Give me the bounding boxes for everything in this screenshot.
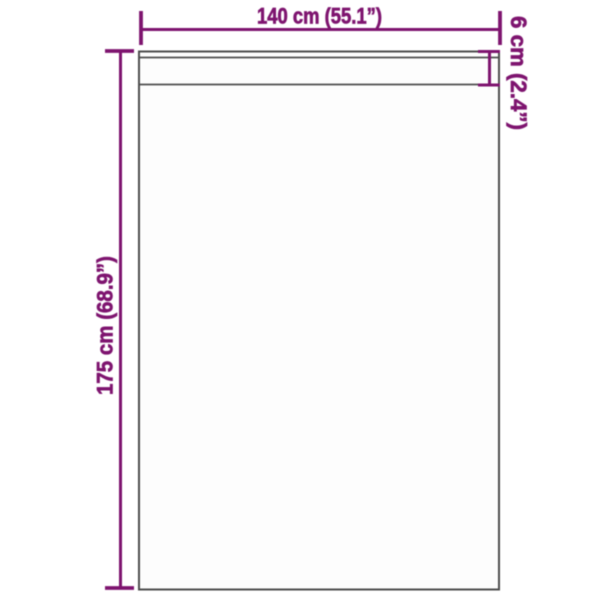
svg-text:6 cm (2.4”): 6 cm (2.4”) (506, 16, 531, 130)
svg-text:175 cm (68.9”): 175 cm (68.9”) (93, 256, 118, 395)
svg-text:140 cm (55.1”): 140 cm (55.1”) (257, 4, 382, 29)
